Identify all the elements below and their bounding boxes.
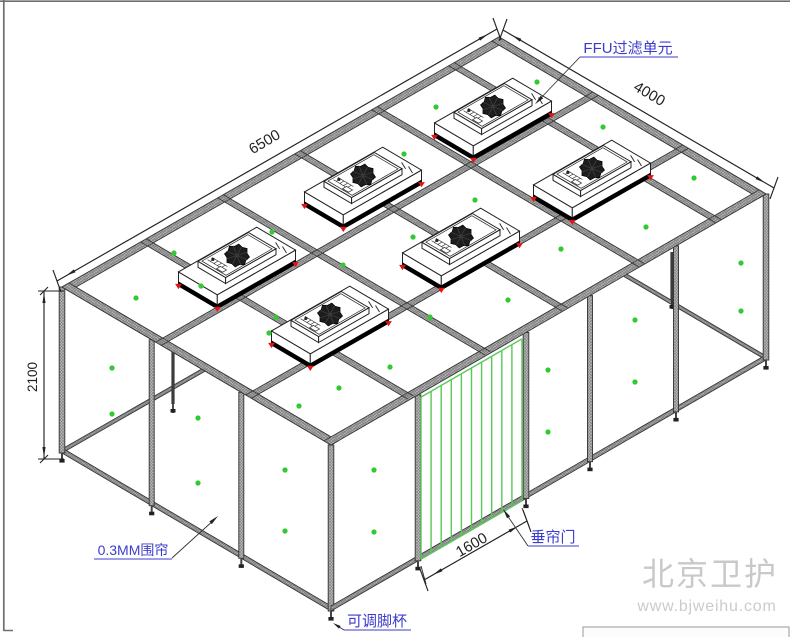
svg-text:可调脚杯: 可调脚杯 [347,613,407,630]
svg-text:FFU过滤单元: FFU过滤单元 [583,40,672,57]
svg-text:北京卫护: 北京卫护 [642,556,778,592]
svg-text:0.3MM围帘: 0.3MM围帘 [98,542,169,558]
svg-text:www.bjweihu.com: www.bjweihu.com [636,598,776,615]
svg-text:垂帘门: 垂帘门 [530,529,575,546]
svg-text:2100: 2100 [25,362,40,392]
